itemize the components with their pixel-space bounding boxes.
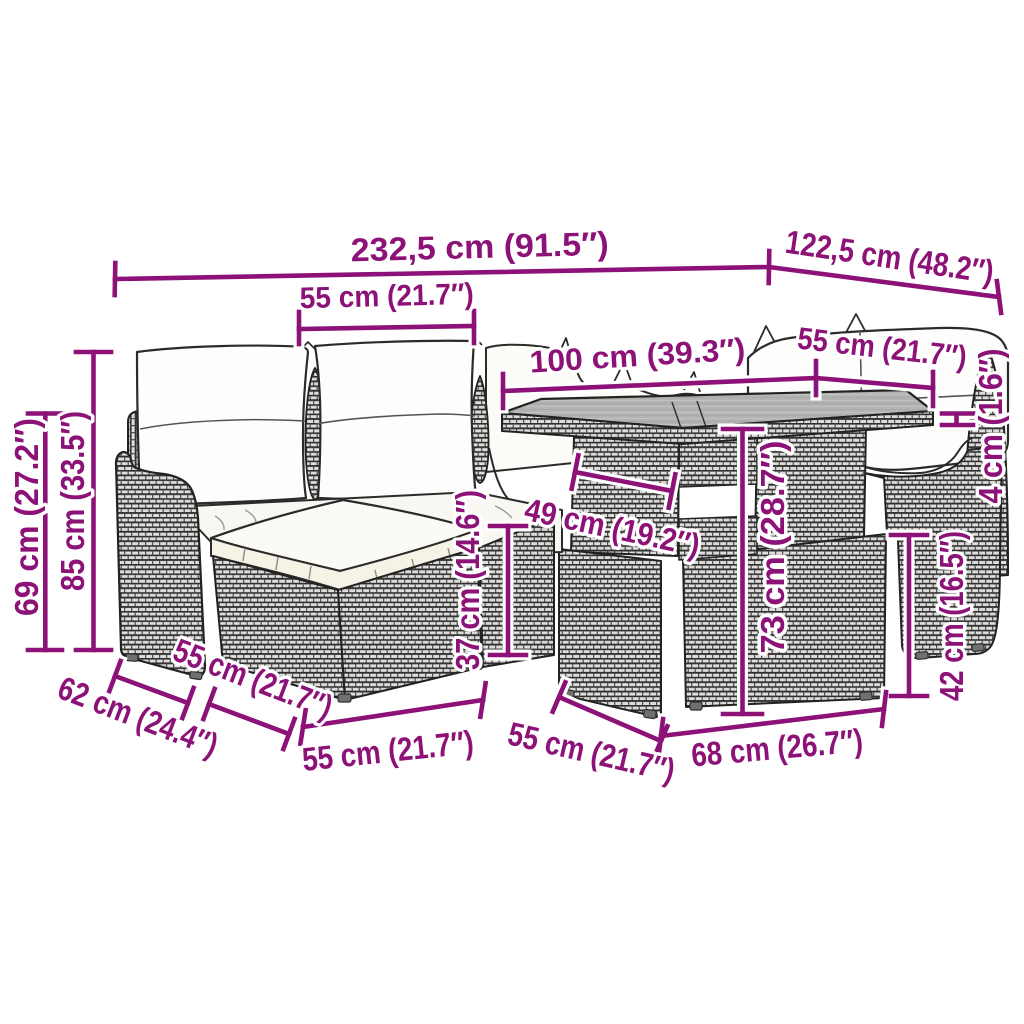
svg-text:232,5 cm (91.5″): 232,5 cm (91.5″) [350, 225, 609, 269]
svg-text:85 cm (33.5″): 85 cm (33.5″) [54, 411, 91, 591]
svg-text:4 cm (1.6″): 4 cm (1.6″) [972, 349, 1009, 504]
svg-text:55 cm (21.7″): 55 cm (21.7″) [299, 278, 474, 316]
svg-text:73 cm (28.7″): 73 cm (28.7″) [754, 441, 791, 654]
svg-text:37 cm (14.6″): 37 cm (14.6″) [449, 490, 486, 670]
svg-text:42 cm (16.5″): 42 cm (16.5″) [933, 531, 970, 701]
svg-text:69 cm (27.2″): 69 cm (27.2″) [8, 418, 45, 616]
